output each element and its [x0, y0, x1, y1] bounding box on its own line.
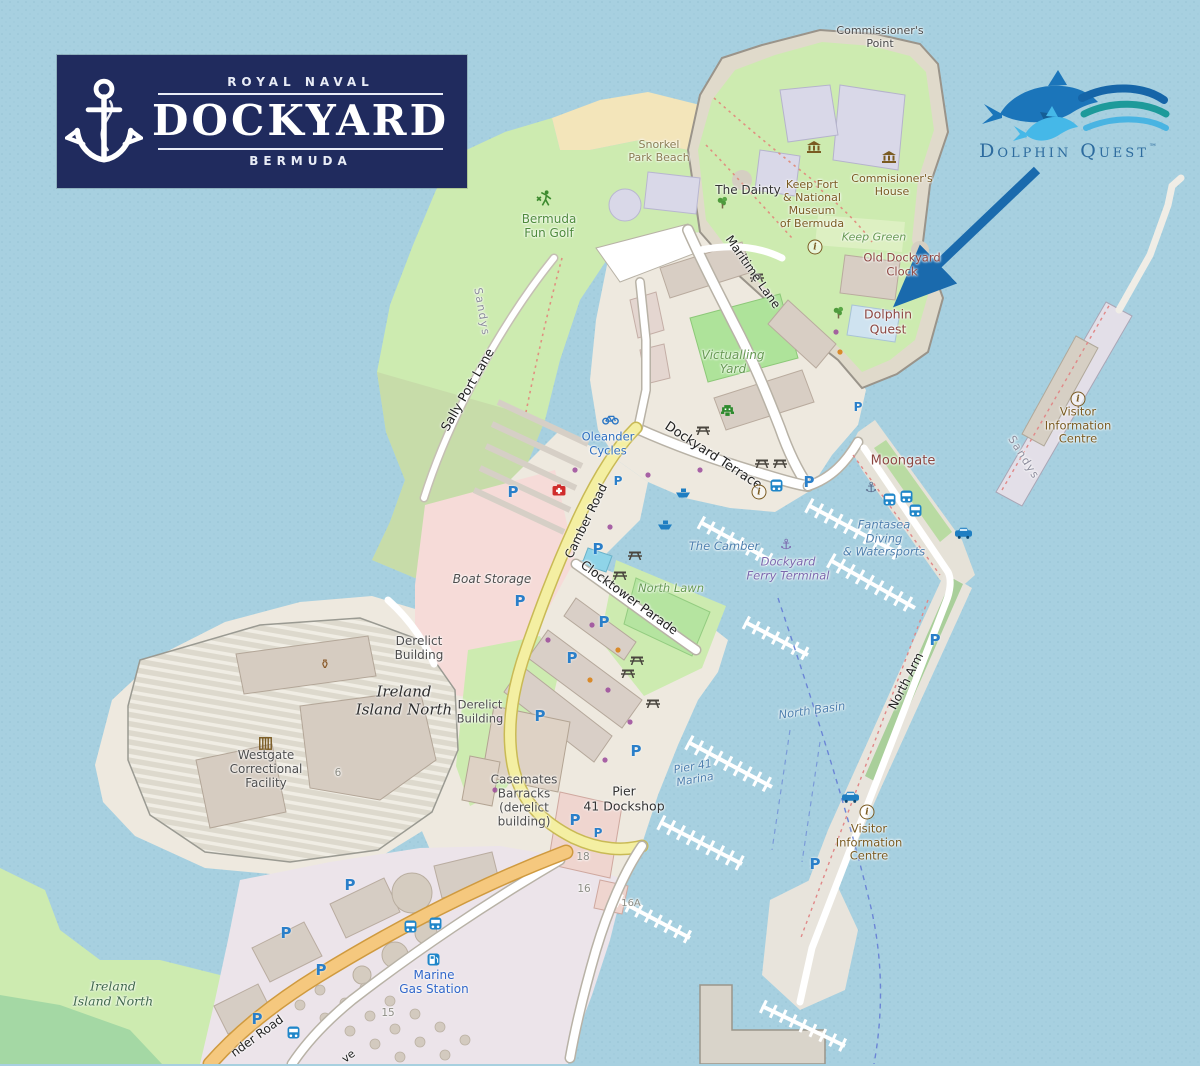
bus-icon — [430, 918, 442, 930]
bus-icon — [910, 505, 922, 517]
bus-icon — [901, 491, 913, 503]
bus-icon — [771, 480, 783, 492]
logo-rule — [158, 148, 443, 150]
logo-line-top: ROYAL NAVAL — [152, 75, 449, 89]
map-canvas: Commissioner's Point Snorkel Park Beach … — [0, 0, 1200, 1064]
first-aid-icon — [553, 484, 566, 495]
logo-title: DOCKYARD — [152, 99, 449, 143]
dolphin-quest-wordmark: Dolphin Quest™ — [979, 140, 1157, 162]
fuel-icon — [428, 954, 440, 966]
trademark-symbol: ™ — [1149, 143, 1157, 152]
dockyard-logo: ROYAL NAVAL DOCKYARD BERMUDA — [57, 55, 467, 188]
bus-icon — [884, 494, 896, 506]
logo-rule — [158, 93, 443, 95]
bus-icon — [288, 1027, 300, 1039]
anchor-icon — [57, 72, 152, 172]
logo-line-bottom: BERMUDA — [152, 154, 449, 168]
dolphin-quest-name: Dolphin Quest — [979, 140, 1149, 162]
bus-icon — [405, 921, 417, 933]
